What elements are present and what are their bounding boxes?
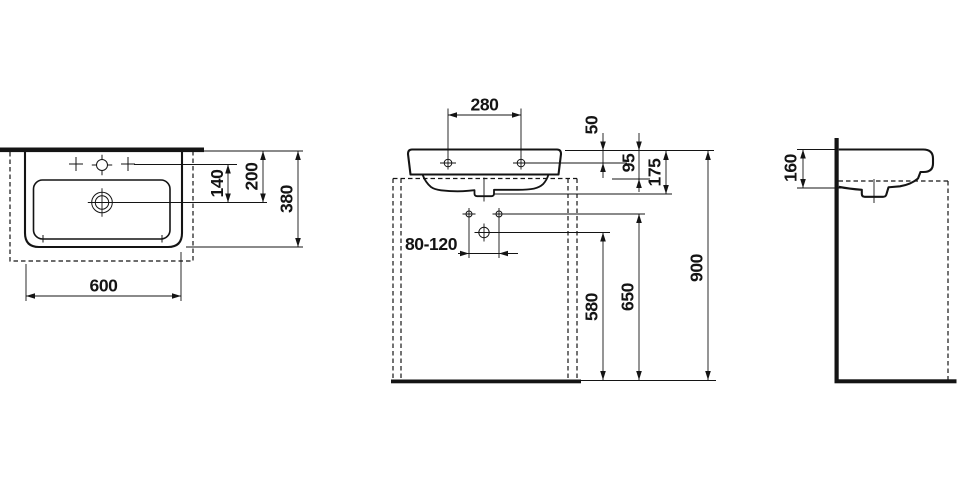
fixing-hole-icon-right [513, 157, 627, 170]
wall-line [0, 148, 204, 153]
dimension-tap-to-drain: 140 [207, 165, 231, 203]
dim-label-50: 50 [582, 115, 602, 134]
top-view: 140 200 380 600 [0, 148, 303, 302]
dimension-floor-to-siphon: 580 [582, 233, 606, 381]
dimension-floor-to-rim: 900 [687, 151, 711, 381]
dim-label-600: 600 [90, 276, 119, 296]
dim-label-580: 580 [582, 292, 602, 321]
mounting-hole-icon-left [463, 208, 476, 220]
dimension-fixing-range: 80-120 [405, 234, 518, 256]
dimension-basin-height: 175 [645, 151, 669, 194]
waste-outlet-icon [475, 224, 611, 242]
dimension-tap-spacing: 280 [448, 95, 521, 118]
dim-label-200: 200 [242, 162, 262, 191]
dimension-floor-to-outlet: 650 [618, 214, 642, 381]
wall-line [835, 138, 839, 383]
dim-label-80-120: 80-120 [405, 234, 458, 254]
clearance-dashed-outline [10, 152, 193, 261]
basin-front-outline [408, 150, 561, 175]
fixing-hole-icon-left [440, 157, 456, 170]
dimension-wall-to-drain: 200 [242, 151, 266, 203]
tap-hole-icon [92, 155, 112, 175]
dim-label-160: 160 [781, 153, 801, 182]
bowl-underside-outline [423, 175, 549, 197]
dim-label-140: 140 [207, 169, 227, 198]
dimension-rim-to-underside: 160 [781, 150, 806, 189]
washbasin-dimension-drawing: 140 200 380 600 [0, 0, 960, 480]
dim-label-280: 280 [471, 95, 500, 115]
alt-tap-hole-marker-right [121, 157, 135, 171]
drain-icon [88, 188, 116, 216]
clearance-dashed-outline [839, 181, 949, 380]
mounting-hole-icon-right [493, 208, 646, 220]
dimension-rim-to-apron: 95 [619, 133, 642, 192]
front-view: 280 50 95 175 80-120 [391, 95, 716, 384]
dim-label-95: 95 [619, 153, 639, 172]
dimension-rim-to-fixing: 50 [582, 115, 606, 178]
basin-side-profile [839, 150, 933, 197]
alt-tap-hole-marker-left [69, 157, 83, 171]
side-view: 160 [781, 138, 957, 383]
dimension-depth: 380 [277, 151, 301, 247]
dimension-width: 600 [26, 276, 181, 299]
dim-label-380: 380 [277, 184, 297, 213]
dim-label-650: 650 [618, 282, 638, 311]
dim-label-900: 900 [687, 253, 707, 282]
floor-line [391, 380, 581, 384]
dim-label-175: 175 [645, 158, 665, 187]
clearance-dashed-verticals [393, 179, 577, 380]
floor-line [835, 379, 957, 383]
